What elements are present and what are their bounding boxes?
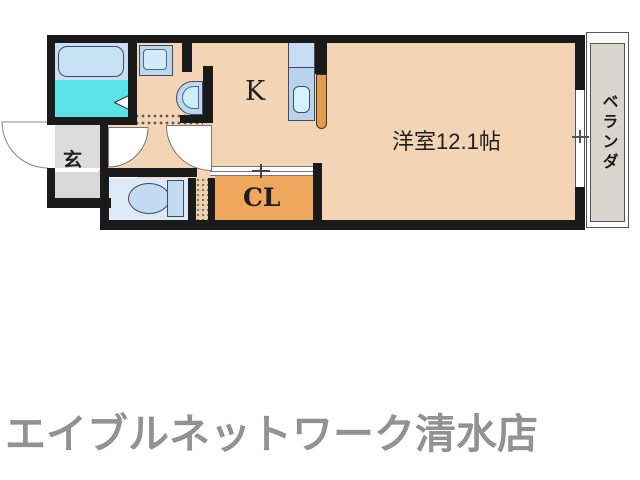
- kitchen-sink-counter-icon: [288, 42, 315, 121]
- wall-segment: [575, 35, 585, 90]
- closet-sliding-door-icon: [210, 166, 314, 176]
- toilet-tank-icon: [167, 180, 184, 217]
- wall-segment: [208, 178, 215, 222]
- wall-segment: [180, 115, 203, 123]
- wall-segment: [128, 43, 137, 117]
- wall-segment: [100, 168, 109, 230]
- entrance-label: 玄: [63, 145, 82, 172]
- wall-segment: [315, 35, 327, 74]
- wall-segment: [47, 117, 137, 125]
- closet-label: CL: [243, 183, 280, 212]
- washbasin-icon: [176, 81, 203, 115]
- entrance-floor-lower: [55, 172, 102, 198]
- toilet-icon: [128, 183, 170, 214]
- wall-segment: [313, 163, 322, 230]
- veranda-label: ベランダ: [596, 93, 620, 173]
- interior-door-arc-icon: [108, 127, 149, 168]
- interior-door-arc-icon: [166, 125, 212, 171]
- wall-segment: [100, 122, 108, 170]
- wall-segment: [188, 178, 196, 222]
- washing-machine-pan-icon: [139, 45, 173, 76]
- floor-plan: 玄 CL ベランダ: [0, 0, 640, 250]
- wall-segment: [203, 66, 213, 123]
- store-name: エイブルネットワーク清水店: [5, 400, 538, 460]
- wall-segment: [100, 168, 197, 177]
- veranda-inner: ベランダ: [590, 43, 625, 222]
- sliding-window-icon: [575, 90, 585, 187]
- open-door-leaf-icon: [316, 74, 327, 129]
- wall-segment: [100, 220, 585, 230]
- bathtub-icon: [58, 46, 124, 77]
- kitchen-label: K: [245, 76, 265, 107]
- main-room-label: 洋室12.1帖: [392, 124, 501, 156]
- entrance-door-arc-icon: [0, 117, 50, 171]
- wall-segment: [47, 35, 55, 122]
- wall-segment: [182, 35, 192, 72]
- folding-door-icon: [196, 178, 208, 222]
